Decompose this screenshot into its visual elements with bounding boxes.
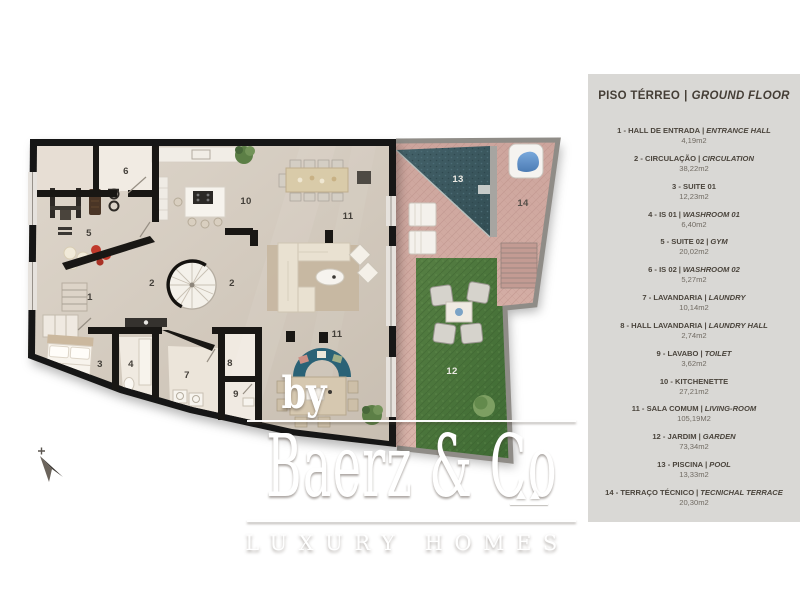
legend-item: 1 - HALL DE ENTRADA|ENTRANCE HALL4,19m2 — [588, 126, 800, 154]
room-label: 5 — [86, 228, 92, 239]
legend-item-name: 1 - HALL DE ENTRADA|ENTRANCE HALL — [588, 126, 800, 136]
legend-item-area: 73,34m2 — [588, 442, 800, 452]
room-label: 6 — [123, 166, 129, 177]
legend-item-area: 27,21m2 — [588, 387, 800, 397]
pool-step — [478, 185, 490, 194]
legend-item-name: 11 - SALA COMUM|LIVING-ROOM — [588, 404, 800, 414]
legend-item-area: 6,40m2 — [588, 220, 800, 230]
legend-item: 10 - KITCHENETTE27,21m2 — [588, 377, 800, 405]
legend-item-name: 8 - HALL LAVANDARIA|LAUNDRY HALL — [588, 321, 800, 331]
legend-item-name: 9 - LAVABO|TOILET — [588, 349, 800, 359]
legend-item-name: 14 - TERRAÇO TÉCNICO|TECNICHAL TERRACE — [588, 488, 800, 498]
legend-title-separator: | — [684, 90, 688, 102]
room-label: 2 — [229, 278, 235, 289]
pool-edge-wall — [490, 146, 497, 237]
legend-item: 2 - CIRCULAÇÃO|CIRCULATION38,22m2 — [588, 154, 800, 182]
legend-item-area: 20,02m2 — [588, 247, 800, 257]
room-label: 1 — [87, 292, 93, 303]
legend-item-name: 10 - KITCHENETTE — [588, 377, 800, 387]
legend-item: 9 - LAVABO|TOILET3,62m2 — [588, 349, 800, 377]
garden-bush-inner — [475, 397, 488, 410]
room-label: 14 — [517, 198, 529, 209]
legend-item-name: 5 - SUITE 02|GYM — [588, 237, 800, 247]
legend-item-area: 20,30m2 — [588, 498, 800, 508]
legend-item: 5 - SUITE 02|GYM20,02m2 — [588, 237, 800, 265]
legend-items: 1 - HALL DE ENTRADA|ENTRANCE HALL4,19m22… — [588, 126, 800, 516]
legend-item: 12 - JARDIM|GARDEN73,34m2 — [588, 432, 800, 460]
legend-item-area: 5,27m2 — [588, 275, 800, 285]
entry-steps — [62, 283, 87, 311]
sideboard — [357, 171, 371, 184]
legend-item: 7 - LAVANDARIA|LAUNDRY10,14m2 — [588, 293, 800, 321]
water-tank-icon — [509, 144, 543, 178]
legend-title-pt: PISO TÉRREO — [598, 90, 680, 102]
room-label: 8 — [227, 358, 233, 369]
screenshot-root: 1223456789101111121314 by Baerz & Co LUX… — [0, 0, 800, 600]
legend-item: 8 - HALL LAVANDARIA|LAUNDRY HALL2,74m2 — [588, 321, 800, 349]
legend-item-area: 13,33m2 — [588, 470, 800, 480]
legend-item: 13 - PISCINA|POOL13,33m2 — [588, 460, 800, 488]
legend-title-en: GROUND FLOOR — [692, 90, 790, 102]
legend-item-name: 3 - SUITE 01 — [588, 182, 800, 192]
room-label: 12 — [446, 366, 457, 377]
legend-item-area: 4,19m2 — [588, 136, 800, 146]
room-label: 10 — [240, 196, 251, 207]
baerz-logo-mark — [510, 490, 550, 508]
room-label: 9 — [233, 389, 239, 400]
wardrobe — [43, 315, 78, 337]
legend-item-name: 13 - PISCINA|POOL — [588, 460, 800, 470]
legend-item-area: 38,22m2 — [588, 164, 800, 174]
watermark-rule-top — [247, 420, 576, 422]
tv-unit — [125, 318, 167, 327]
legend-item: 11 - SALA COMUM|LIVING-ROOM105,19M2 — [588, 404, 800, 432]
room-label: 2 — [149, 278, 155, 289]
legend-item-area: 3,62m2 — [588, 359, 800, 369]
room-label: 13 — [452, 174, 463, 185]
legend-item-name: 2 - CIRCULAÇÃO|CIRCULATION — [588, 154, 800, 164]
legend-item: 3 - SUITE 0112,23m2 — [588, 182, 800, 210]
legend-panel: PISO TÉRREO|GROUND FLOOR 1 - HALL DE ENT… — [588, 74, 800, 522]
legend-item: 14 - TERRAÇO TÉCNICO|TECNICHAL TERRACE20… — [588, 488, 800, 516]
room-label: 11 — [332, 329, 343, 340]
legend-item-name: 12 - JARDIM|GARDEN — [588, 432, 800, 442]
room-label: 3 — [97, 359, 103, 370]
room-label: 7 — [184, 370, 190, 381]
legend-item: 6 - IS 02|WASHROOM 025,27m2 — [588, 265, 800, 293]
terrace-stairs — [501, 243, 537, 288]
legend-item: 4 - IS 01|WASHROOM 016,40m2 — [588, 210, 800, 238]
legend-item-name: 4 - IS 01|WASHROOM 01 — [588, 210, 800, 220]
watermark-rule-bottom — [247, 520, 576, 522]
spiral-staircase — [168, 261, 216, 309]
coffee-table — [316, 269, 344, 285]
building — [28, 139, 396, 447]
vestibule-floor — [37, 146, 93, 191]
legend-item-name: 7 - LAVANDARIA|LAUNDRY — [588, 293, 800, 303]
legend-item-name: 6 - IS 02|WASHROOM 02 — [588, 265, 800, 275]
room-label: 11 — [343, 211, 354, 222]
room-label: 4 — [128, 359, 134, 370]
toilet-sink — [243, 398, 254, 406]
legend-item-area: 10,14m2 — [588, 303, 800, 313]
legend-item-area: 105,19M2 — [588, 414, 800, 424]
legend-item-area: 12,23m2 — [588, 192, 800, 202]
legend-item-area: 2,74m2 — [588, 331, 800, 341]
north-arrow-icon — [38, 448, 63, 483]
legend-title: PISO TÉRREO|GROUND FLOOR — [588, 89, 800, 103]
outdoor-zone — [396, 140, 558, 461]
